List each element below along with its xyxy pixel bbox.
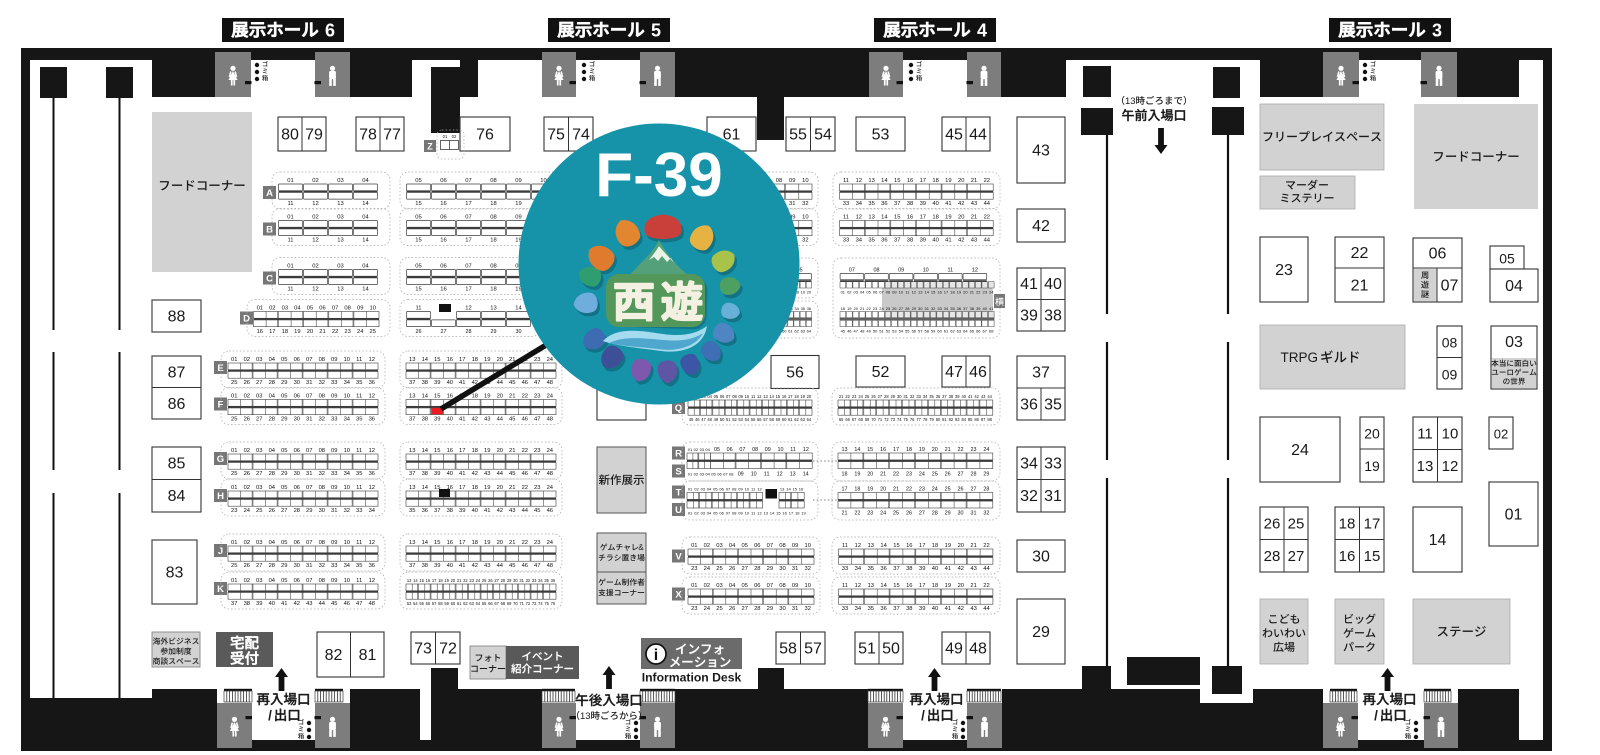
svg-text:27: 27 [919, 511, 925, 517]
svg-text:35: 35 [356, 417, 362, 423]
svg-text:29: 29 [945, 511, 951, 517]
svg-text:40: 40 [932, 566, 938, 572]
svg-text:17: 17 [1364, 516, 1381, 533]
svg-text:15: 15 [415, 238, 421, 244]
svg-text:08: 08 [776, 178, 782, 184]
svg-text:84: 84 [962, 417, 967, 422]
svg-text:13: 13 [337, 287, 343, 293]
svg-text:28: 28 [932, 511, 938, 517]
svg-text:23: 23 [534, 485, 540, 491]
svg-text:63: 63 [801, 329, 806, 334]
svg-text:27: 27 [741, 606, 747, 612]
svg-text:24: 24 [858, 394, 863, 399]
svg-text:44: 44 [984, 238, 991, 244]
svg-text:45: 45 [841, 329, 846, 334]
svg-text:03: 03 [256, 578, 262, 584]
svg-text:08: 08 [732, 511, 737, 516]
svg-text:06: 06 [717, 472, 722, 477]
svg-text:10: 10 [804, 543, 810, 549]
svg-text:22: 22 [463, 578, 468, 583]
svg-text:04: 04 [269, 578, 276, 584]
svg-text:21: 21 [970, 290, 975, 295]
svg-text:24: 24 [983, 447, 989, 453]
svg-text:37: 37 [409, 380, 415, 386]
svg-text:04: 04 [1505, 278, 1523, 295]
svg-text:31: 31 [306, 471, 312, 477]
svg-text:46: 46 [522, 380, 528, 386]
svg-text:76: 76 [551, 601, 556, 606]
svg-text:36: 36 [881, 201, 887, 207]
svg-text:42: 42 [958, 606, 964, 612]
svg-text:32: 32 [319, 563, 325, 569]
svg-text:18: 18 [932, 543, 938, 549]
svg-text:14: 14 [422, 448, 429, 454]
svg-text:25: 25 [932, 472, 938, 478]
svg-text:29: 29 [491, 329, 497, 335]
svg-text:10: 10 [923, 268, 929, 274]
svg-text:42: 42 [472, 417, 478, 423]
svg-text:52: 52 [872, 364, 890, 381]
svg-text:36: 36 [880, 566, 886, 572]
svg-text:&: & [638, 543, 644, 552]
svg-text:18: 18 [932, 178, 938, 184]
svg-text:07: 07 [723, 472, 728, 477]
svg-text:21: 21 [319, 329, 325, 335]
svg-text:Z: Z [427, 141, 433, 151]
svg-text:60: 60 [451, 601, 456, 606]
svg-text:41: 41 [945, 238, 951, 244]
svg-text:K: K [217, 584, 224, 595]
svg-text:11: 11 [790, 447, 796, 453]
svg-text:04: 04 [269, 394, 276, 400]
svg-text:22: 22 [845, 394, 850, 399]
svg-text:55: 55 [751, 417, 756, 422]
svg-text:21: 21 [509, 394, 515, 400]
svg-text:02: 02 [694, 472, 699, 477]
svg-text:20: 20 [963, 290, 968, 295]
svg-text:08: 08 [490, 178, 496, 184]
svg-text:02: 02 [244, 540, 250, 546]
svg-text:20: 20 [451, 578, 456, 583]
svg-text:28: 28 [1264, 548, 1281, 565]
svg-text:09: 09 [892, 290, 897, 295]
svg-text:09: 09 [331, 448, 337, 454]
svg-text:83: 83 [166, 565, 184, 582]
svg-text:21: 21 [970, 543, 976, 549]
svg-text:15: 15 [434, 540, 440, 546]
svg-text:12: 12 [803, 447, 809, 453]
svg-text:15: 15 [776, 394, 781, 399]
svg-text:20: 20 [880, 487, 886, 493]
svg-text:39: 39 [434, 380, 440, 386]
svg-text:35: 35 [356, 380, 362, 386]
svg-text:02: 02 [244, 485, 250, 491]
svg-text:09: 09 [331, 578, 337, 584]
svg-text:10: 10 [344, 578, 350, 584]
svg-text:44: 44 [983, 606, 990, 612]
svg-text:23: 23 [534, 448, 540, 454]
svg-text:22: 22 [906, 487, 912, 493]
svg-text:81: 81 [942, 417, 947, 422]
svg-text:07: 07 [306, 357, 312, 363]
svg-text:33: 33 [331, 417, 337, 423]
svg-text:46: 46 [547, 508, 553, 514]
svg-text:37: 37 [893, 566, 899, 572]
svg-text:26: 26 [892, 306, 897, 311]
svg-text:73: 73 [532, 601, 537, 606]
svg-text:39: 39 [920, 238, 926, 244]
svg-text:09: 09 [738, 394, 743, 399]
svg-text:11: 11 [842, 583, 848, 589]
svg-text:21: 21 [970, 583, 976, 589]
svg-text:22: 22 [522, 485, 528, 491]
svg-text:22: 22 [522, 394, 528, 400]
svg-text:10: 10 [778, 447, 784, 453]
svg-text:01: 01 [231, 485, 237, 491]
svg-text:74: 74 [538, 601, 543, 606]
svg-text:12: 12 [312, 238, 318, 244]
svg-text:32: 32 [802, 201, 808, 207]
svg-text:08: 08 [319, 578, 325, 584]
svg-text:32: 32 [526, 578, 531, 583]
svg-text:12: 12 [856, 178, 862, 184]
svg-text:42: 42 [1032, 218, 1050, 235]
svg-text:18: 18 [932, 215, 938, 221]
svg-text:48: 48 [707, 417, 712, 422]
svg-text:08: 08 [732, 487, 737, 492]
svg-text:74: 74 [572, 127, 590, 144]
svg-text:25: 25 [716, 606, 722, 612]
svg-text:53: 53 [872, 127, 890, 144]
svg-text:40: 40 [932, 238, 938, 244]
svg-text:17: 17 [893, 447, 899, 453]
svg-text:63: 63 [469, 601, 474, 606]
svg-text:24: 24 [357, 329, 364, 335]
svg-text:28: 28 [754, 566, 760, 572]
svg-text:10: 10 [344, 394, 350, 400]
svg-text:23: 23 [982, 290, 987, 295]
svg-text:50: 50 [882, 641, 900, 658]
svg-text:12: 12 [777, 472, 783, 478]
svg-text:40: 40 [447, 417, 453, 423]
svg-text:09: 09 [792, 583, 798, 589]
svg-text:44: 44 [522, 508, 529, 514]
svg-text:20: 20 [932, 447, 938, 453]
svg-text:30: 30 [513, 578, 518, 583]
svg-text:47: 47 [534, 563, 540, 569]
svg-text:64: 64 [476, 601, 481, 606]
svg-text:30: 30 [779, 566, 785, 572]
svg-text:03: 03 [700, 447, 705, 452]
svg-text:15: 15 [867, 447, 873, 453]
svg-text:64: 64 [963, 329, 968, 334]
svg-text:01: 01 [231, 394, 237, 400]
svg-text:13: 13 [868, 543, 874, 549]
svg-text:18: 18 [841, 306, 846, 311]
svg-text:13: 13 [868, 215, 874, 221]
svg-text:62: 62 [950, 329, 955, 334]
svg-text:15: 15 [776, 511, 781, 516]
svg-text:04: 04 [362, 264, 369, 270]
svg-text:68: 68 [989, 329, 994, 334]
svg-text:04: 04 [269, 448, 276, 454]
svg-text:09: 09 [1442, 367, 1458, 383]
svg-text:43: 43 [981, 394, 986, 399]
svg-text:01: 01 [443, 134, 448, 139]
svg-text:20: 20 [497, 357, 503, 363]
svg-text:46: 46 [344, 601, 350, 607]
svg-text:87: 87 [981, 417, 986, 422]
svg-text:46: 46 [522, 417, 528, 423]
svg-text:11: 11 [356, 448, 362, 454]
svg-text:37: 37 [231, 601, 237, 607]
svg-text:09: 09 [738, 487, 743, 492]
svg-text:67: 67 [982, 329, 987, 334]
svg-text:32: 32 [319, 380, 325, 386]
svg-text:09: 09 [331, 540, 337, 546]
svg-text:71: 71 [519, 601, 524, 606]
svg-text:12: 12 [972, 268, 978, 274]
svg-text:33: 33 [532, 578, 537, 583]
svg-text:19: 19 [484, 357, 490, 363]
svg-text:06: 06 [440, 264, 446, 270]
svg-text:07: 07 [726, 394, 731, 399]
svg-text:08: 08 [490, 264, 496, 270]
svg-text:02: 02 [1494, 427, 1508, 442]
svg-text:41: 41 [281, 601, 287, 607]
svg-text:06: 06 [440, 215, 446, 221]
svg-text:12: 12 [912, 290, 917, 295]
svg-text:19: 19 [957, 290, 962, 295]
svg-text:27: 27 [958, 472, 964, 478]
svg-text:19: 19 [484, 448, 490, 454]
svg-text:25: 25 [886, 306, 891, 311]
svg-text:01: 01 [688, 511, 693, 516]
svg-text:19: 19 [444, 578, 449, 583]
svg-text:31: 31 [1044, 488, 1062, 505]
svg-text:21: 21 [839, 394, 844, 399]
svg-text:14: 14 [924, 290, 929, 295]
svg-text:51: 51 [726, 417, 731, 422]
svg-text:61: 61 [944, 329, 949, 334]
svg-text:31: 31 [924, 306, 929, 311]
svg-text:04: 04 [705, 472, 710, 477]
svg-text:06: 06 [720, 394, 725, 399]
svg-text:14: 14 [1429, 532, 1447, 549]
svg-text:19: 19 [515, 201, 521, 207]
svg-text:18: 18 [950, 290, 955, 295]
svg-text:26: 26 [729, 566, 735, 572]
svg-text:48: 48 [547, 563, 553, 569]
svg-text:10: 10 [745, 511, 750, 516]
svg-text:01: 01 [1505, 507, 1523, 524]
svg-text:21: 21 [509, 448, 515, 454]
svg-text:35: 35 [801, 306, 806, 311]
svg-text:20: 20 [497, 485, 503, 491]
svg-text:40: 40 [269, 601, 275, 607]
svg-text:07: 07 [465, 178, 471, 184]
svg-text:14: 14 [770, 511, 775, 516]
svg-text:04: 04 [269, 540, 276, 546]
svg-text:24: 24 [547, 448, 554, 454]
svg-text:22: 22 [522, 448, 528, 454]
svg-text:07: 07 [306, 394, 312, 400]
svg-text:36: 36 [369, 563, 375, 569]
svg-text:29: 29 [281, 563, 287, 569]
svg-text:28: 28 [466, 329, 472, 335]
svg-text:35: 35 [868, 566, 874, 572]
svg-text:23: 23 [344, 329, 350, 335]
svg-text:25: 25 [893, 511, 899, 517]
svg-text:71: 71 [878, 417, 883, 422]
svg-text:57: 57 [804, 641, 822, 658]
svg-text:13: 13 [842, 447, 848, 453]
svg-text:10: 10 [751, 472, 757, 478]
svg-text:27: 27 [899, 306, 904, 311]
svg-text:39: 39 [434, 417, 440, 423]
svg-text:48: 48 [969, 641, 987, 658]
svg-text:11: 11 [287, 238, 293, 244]
svg-text:17: 17 [842, 487, 848, 493]
svg-text:05: 05 [307, 306, 313, 312]
svg-text:21: 21 [1351, 278, 1369, 295]
svg-text:72: 72 [884, 417, 889, 422]
svg-text:22: 22 [522, 540, 528, 546]
svg-text:59: 59 [444, 601, 449, 606]
svg-text:13: 13 [337, 201, 343, 207]
svg-text:11: 11 [751, 394, 756, 399]
svg-text:07: 07 [1441, 278, 1459, 295]
svg-text:03: 03 [716, 583, 722, 589]
svg-text:60: 60 [782, 417, 787, 422]
svg-text:03: 03 [853, 290, 858, 295]
svg-text:17: 17 [944, 290, 949, 295]
svg-text:51: 51 [879, 329, 884, 334]
svg-text:14: 14 [786, 487, 791, 492]
svg-text:46: 46 [695, 417, 700, 422]
svg-text:45: 45 [689, 417, 694, 422]
svg-text:13: 13 [780, 487, 785, 492]
svg-text:02: 02 [244, 448, 250, 454]
svg-text:12: 12 [369, 394, 375, 400]
svg-text:25: 25 [256, 508, 262, 514]
svg-text:21: 21 [971, 178, 977, 184]
svg-text:13: 13 [1417, 458, 1434, 475]
svg-text:12: 12 [369, 485, 375, 491]
svg-text:48: 48 [860, 329, 865, 334]
svg-text:63: 63 [957, 329, 962, 334]
svg-text:41: 41 [945, 201, 951, 207]
svg-text:23: 23 [971, 447, 977, 453]
svg-text:42: 42 [472, 563, 478, 569]
svg-text:40: 40 [447, 471, 453, 477]
svg-text:05: 05 [714, 447, 720, 453]
svg-text:25: 25 [945, 487, 951, 493]
svg-text:20: 20 [497, 394, 503, 400]
svg-text:10: 10 [369, 306, 375, 312]
svg-text:15: 15 [793, 487, 798, 492]
svg-text:59: 59 [776, 417, 781, 422]
svg-text:18: 18 [490, 201, 496, 207]
svg-text:19: 19 [484, 540, 490, 546]
svg-text:08: 08 [752, 447, 758, 453]
svg-text:34: 34 [344, 471, 351, 477]
svg-text:17: 17 [788, 394, 793, 399]
svg-text:35: 35 [929, 394, 934, 399]
svg-text:38: 38 [422, 380, 428, 386]
svg-text:02: 02 [847, 290, 852, 295]
svg-text:56: 56 [786, 365, 804, 382]
svg-text:15: 15 [415, 201, 421, 207]
svg-text:34: 34 [344, 380, 351, 386]
svg-text:02: 02 [694, 511, 699, 516]
svg-text:53: 53 [407, 601, 412, 606]
svg-text:29: 29 [891, 394, 896, 399]
svg-text:29: 29 [983, 472, 989, 478]
svg-text:37: 37 [894, 238, 900, 244]
svg-text:44: 44 [497, 417, 504, 423]
svg-text:14: 14 [362, 201, 369, 207]
svg-text:01: 01 [231, 357, 237, 363]
svg-text:36: 36 [807, 306, 812, 311]
svg-text:19: 19 [854, 472, 860, 478]
svg-text:23: 23 [534, 394, 540, 400]
svg-text:28: 28 [754, 606, 760, 612]
svg-text:08: 08 [779, 543, 785, 549]
svg-text:36: 36 [936, 394, 941, 399]
svg-text:17: 17 [459, 485, 465, 491]
svg-text:25: 25 [482, 578, 487, 583]
svg-text:27: 27 [256, 471, 262, 477]
svg-text:14: 14 [422, 394, 429, 400]
svg-text:14: 14 [880, 543, 887, 549]
svg-text:65: 65 [970, 329, 975, 334]
svg-text:18: 18 [472, 485, 478, 491]
svg-text:24: 24 [476, 578, 481, 583]
svg-text:12: 12 [757, 487, 762, 492]
svg-text:D: D [243, 313, 250, 324]
svg-text:22: 22 [983, 583, 989, 589]
svg-text:42: 42 [958, 201, 964, 207]
svg-text:10: 10 [745, 487, 750, 492]
svg-text:01: 01 [688, 472, 693, 477]
svg-text:05: 05 [711, 472, 716, 477]
svg-text:34: 34 [856, 201, 863, 207]
svg-text:17: 17 [920, 215, 926, 221]
svg-text:09: 09 [765, 447, 771, 453]
svg-text:24: 24 [879, 306, 884, 311]
svg-text:14: 14 [881, 178, 888, 184]
svg-text:22: 22 [1351, 245, 1369, 262]
svg-text:39: 39 [919, 606, 925, 612]
svg-text:44: 44 [497, 471, 504, 477]
svg-text:20: 20 [958, 543, 964, 549]
svg-text:05: 05 [866, 290, 871, 295]
svg-text:32: 32 [319, 471, 325, 477]
svg-text:39: 39 [434, 471, 440, 477]
svg-text:10: 10 [804, 583, 810, 589]
svg-text:34: 34 [856, 238, 863, 244]
svg-text:13: 13 [868, 178, 874, 184]
svg-text:11: 11 [356, 394, 362, 400]
svg-text:21: 21 [893, 487, 899, 493]
svg-text:43: 43 [484, 563, 490, 569]
svg-text:12: 12 [855, 583, 861, 589]
svg-text:14: 14 [515, 306, 522, 312]
svg-text:28: 28 [269, 380, 275, 386]
svg-text:13: 13 [409, 357, 415, 363]
svg-text:64: 64 [807, 329, 812, 334]
